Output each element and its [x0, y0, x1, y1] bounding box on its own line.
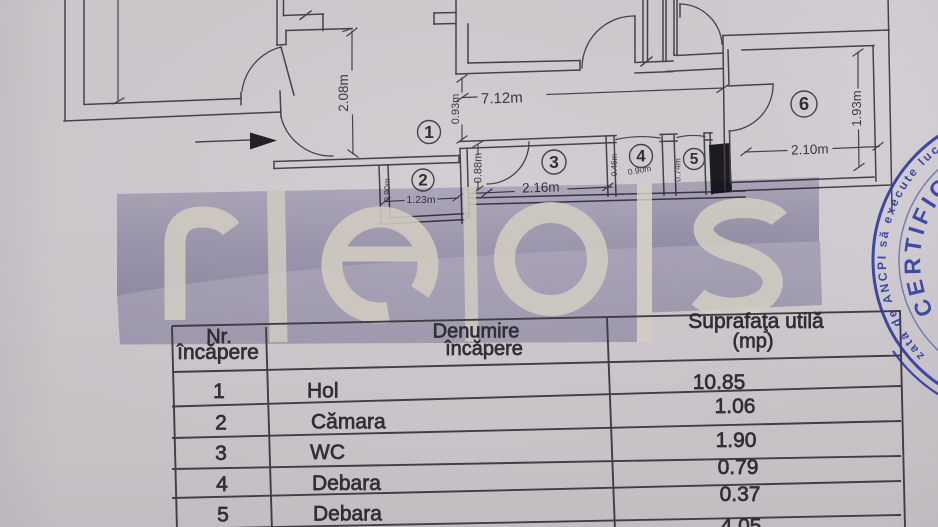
svg-text:1.90: 1.90 [716, 429, 757, 452]
svg-text:10.85: 10.85 [693, 371, 746, 394]
svg-text:Cămara: Cămara [311, 411, 386, 434]
svg-text:încăpere: încăpere [444, 338, 523, 360]
svg-text:4: 4 [216, 473, 228, 496]
svg-text:încăpere: încăpere [176, 341, 259, 364]
svg-text:0.46m: 0.46m [610, 154, 619, 177]
svg-text:1.93m: 1.93m [849, 90, 864, 126]
svg-text:3: 3 [549, 152, 559, 172]
svg-text:Debara: Debara [312, 472, 381, 495]
svg-text:0.74m: 0.74m [673, 158, 683, 182]
svg-text:0.88m: 0.88m [473, 153, 485, 184]
svg-text:1: 1 [424, 122, 434, 142]
svg-text:Debara: Debara [313, 503, 382, 526]
svg-text:1.06: 1.06 [715, 395, 756, 418]
svg-text:2.08m: 2.08m [336, 74, 351, 112]
svg-text:0.37: 0.37 [720, 483, 761, 506]
svg-text:Hol: Hol [307, 380, 339, 403]
svg-text:5: 5 [690, 151, 699, 168]
svg-text:0.79: 0.79 [718, 456, 759, 479]
svg-text:(mp): (mp) [732, 331, 773, 353]
svg-text:WC: WC [310, 441, 345, 464]
svg-text:2: 2 [418, 170, 427, 189]
svg-text:0.93m: 0.93m [450, 94, 462, 125]
svg-text:4.05: 4.05 [721, 515, 762, 527]
svg-text:6: 6 [799, 93, 809, 114]
svg-text:1: 1 [213, 380, 225, 403]
svg-text:4: 4 [636, 147, 646, 165]
svg-text:5: 5 [217, 504, 229, 527]
svg-text:3: 3 [215, 442, 227, 465]
svg-text:7.12m: 7.12m [481, 89, 523, 107]
svg-text:2: 2 [215, 412, 227, 435]
svg-text:2.10m: 2.10m [791, 141, 829, 157]
